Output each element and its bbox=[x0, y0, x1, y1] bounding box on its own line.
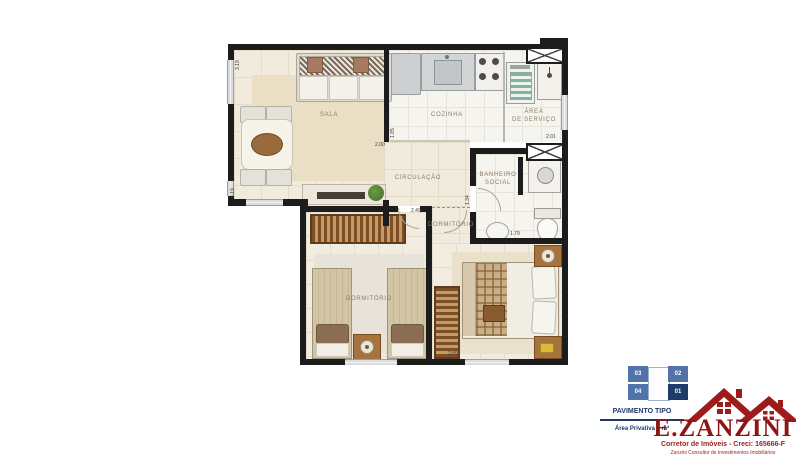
brand-line2: Zanzini Consultor de Investimentos Imobi… bbox=[648, 450, 798, 456]
washer-drum bbox=[510, 72, 532, 100]
sofa-seat bbox=[329, 76, 358, 100]
washing-machine bbox=[506, 62, 535, 104]
pavimento-label: PAVIMENTO TIPO bbox=[600, 408, 684, 415]
wall bbox=[476, 148, 526, 154]
single-bed bbox=[312, 268, 352, 359]
circulacao-floor bbox=[384, 142, 470, 206]
bed-pillow bbox=[391, 324, 424, 344]
nightstand bbox=[534, 336, 562, 359]
sofa-pillow bbox=[353, 57, 369, 73]
bed-pillow bbox=[531, 300, 557, 334]
wardrobe bbox=[310, 214, 406, 244]
keyplan-unit-02: 02 bbox=[668, 366, 688, 382]
kitchen-divider bbox=[503, 52, 505, 142]
laundry-tank bbox=[537, 62, 562, 100]
dim-label: 1.34 bbox=[466, 195, 471, 205]
toilet bbox=[534, 208, 560, 242]
bathroom-sink bbox=[537, 167, 554, 184]
double-bed bbox=[462, 262, 559, 339]
faucet-stem bbox=[549, 67, 550, 74]
bed-pillow bbox=[531, 265, 557, 299]
tv bbox=[317, 192, 365, 199]
dim-label: 3.19 bbox=[236, 60, 241, 70]
single-bed bbox=[387, 268, 427, 359]
wall bbox=[306, 206, 398, 212]
burner-icon bbox=[479, 58, 486, 65]
wall bbox=[562, 44, 568, 365]
room-label-circulacao: CIRCULAÇÃO bbox=[388, 175, 448, 182]
brand-name: E.ZANZINI bbox=[648, 416, 798, 442]
dim-label: 1.85 bbox=[391, 128, 396, 138]
dining-table bbox=[241, 119, 293, 170]
sofa-pillow bbox=[307, 57, 323, 73]
bed-pillow bbox=[316, 324, 349, 344]
brand-line1: Corretor de Imóveis - Creci: 165666-F bbox=[648, 441, 798, 448]
window bbox=[246, 199, 283, 206]
dining-chair bbox=[240, 169, 266, 186]
nightstand bbox=[534, 245, 562, 267]
dim-label: 3.19 bbox=[231, 188, 236, 198]
branding-block: 03 02 04 01 PAVIMENTO TIPO Área Privativ… bbox=[596, 358, 800, 462]
window bbox=[561, 95, 568, 130]
page: SALA COZINHA ÁREA DE SERVIÇO CIRCULAÇÃO … bbox=[0, 0, 800, 462]
nightstand bbox=[353, 334, 381, 360]
faucet-icon bbox=[445, 55, 449, 59]
window bbox=[465, 359, 509, 365]
room-label-banheiro-2: SOCIAL bbox=[473, 180, 523, 187]
plant bbox=[368, 185, 384, 201]
keyplan-unit-04: 04 bbox=[628, 384, 648, 400]
bed-plaid-blanket bbox=[476, 263, 507, 336]
sofa bbox=[296, 53, 392, 102]
burner-icon bbox=[492, 73, 499, 80]
room-label-area-servico-2: DE SERVIÇO bbox=[504, 117, 564, 124]
sofa-seat bbox=[299, 76, 328, 100]
wall bbox=[300, 359, 568, 365]
bed-headboard bbox=[316, 343, 349, 357]
keyplan-unit-01: 01 bbox=[668, 384, 688, 400]
keyplan: 03 02 04 01 bbox=[622, 362, 694, 404]
dining-table-top bbox=[251, 133, 283, 156]
opening-line bbox=[432, 207, 470, 208]
wall bbox=[228, 44, 568, 50]
shaft-icon bbox=[526, 47, 564, 64]
bed-headboard bbox=[391, 343, 424, 357]
room-label-banheiro-1: BANHEIRO bbox=[473, 172, 523, 179]
room-label-sala: SALA bbox=[309, 112, 349, 119]
wall bbox=[383, 200, 389, 226]
wall bbox=[384, 50, 389, 142]
window bbox=[345, 359, 397, 365]
keyplan-unit-03: 03 bbox=[628, 366, 648, 382]
dim-label: 1.79 bbox=[510, 232, 520, 237]
kitchen-counter bbox=[421, 53, 475, 91]
bed-footboard bbox=[463, 263, 476, 336]
dim-label: 2.01 bbox=[546, 135, 556, 140]
lamp-icon bbox=[541, 249, 555, 263]
dining-chair bbox=[266, 169, 292, 186]
washer-panel bbox=[510, 65, 530, 69]
bathroom-vanity bbox=[528, 158, 561, 193]
floor-transition bbox=[390, 140, 470, 142]
room-label-area-servico-1: ÁREA bbox=[509, 109, 559, 116]
wardrobe bbox=[434, 286, 460, 359]
keyplan-core bbox=[648, 367, 670, 401]
book bbox=[540, 343, 554, 353]
shaft-icon bbox=[526, 143, 564, 161]
dim-label: 2.89 bbox=[448, 352, 458, 357]
room-label-dormitorio-1: DORMITÓRIO bbox=[334, 296, 404, 303]
lamp-icon bbox=[360, 340, 374, 354]
kitchen-sink bbox=[434, 60, 462, 85]
breakfast-tray bbox=[483, 305, 505, 322]
room-label-dormitorio-2: DORMITÓRIO bbox=[416, 222, 486, 229]
fridge bbox=[391, 53, 421, 95]
dim-label: 2.00 bbox=[375, 143, 385, 148]
wall bbox=[470, 238, 562, 244]
wall bbox=[300, 199, 306, 365]
room-label-cozinha: COZINHA bbox=[417, 112, 477, 119]
dim-label: 2.49 bbox=[411, 209, 421, 214]
burner-icon bbox=[492, 58, 499, 65]
window bbox=[227, 60, 234, 104]
burner-icon bbox=[479, 73, 486, 80]
stove bbox=[475, 53, 505, 91]
